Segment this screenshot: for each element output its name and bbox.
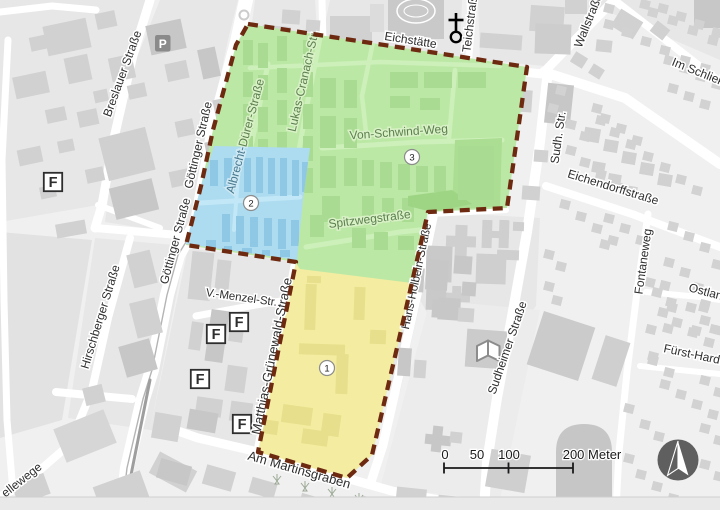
svg-text:1: 1 bbox=[324, 364, 329, 375]
svg-text:F: F bbox=[49, 175, 58, 191]
svg-text:P: P bbox=[159, 37, 167, 51]
svg-text:0: 0 bbox=[441, 447, 448, 462]
svg-text:F: F bbox=[238, 417, 247, 433]
svg-text:100: 100 bbox=[498, 447, 520, 462]
svg-text:2: 2 bbox=[248, 199, 253, 210]
svg-text:50: 50 bbox=[470, 447, 484, 462]
svg-text:F: F bbox=[235, 315, 244, 331]
svg-text:F: F bbox=[196, 372, 205, 388]
svg-text:F: F bbox=[212, 327, 221, 343]
svg-text:200 Meter: 200 Meter bbox=[563, 447, 622, 462]
svg-text:3: 3 bbox=[409, 153, 414, 164]
